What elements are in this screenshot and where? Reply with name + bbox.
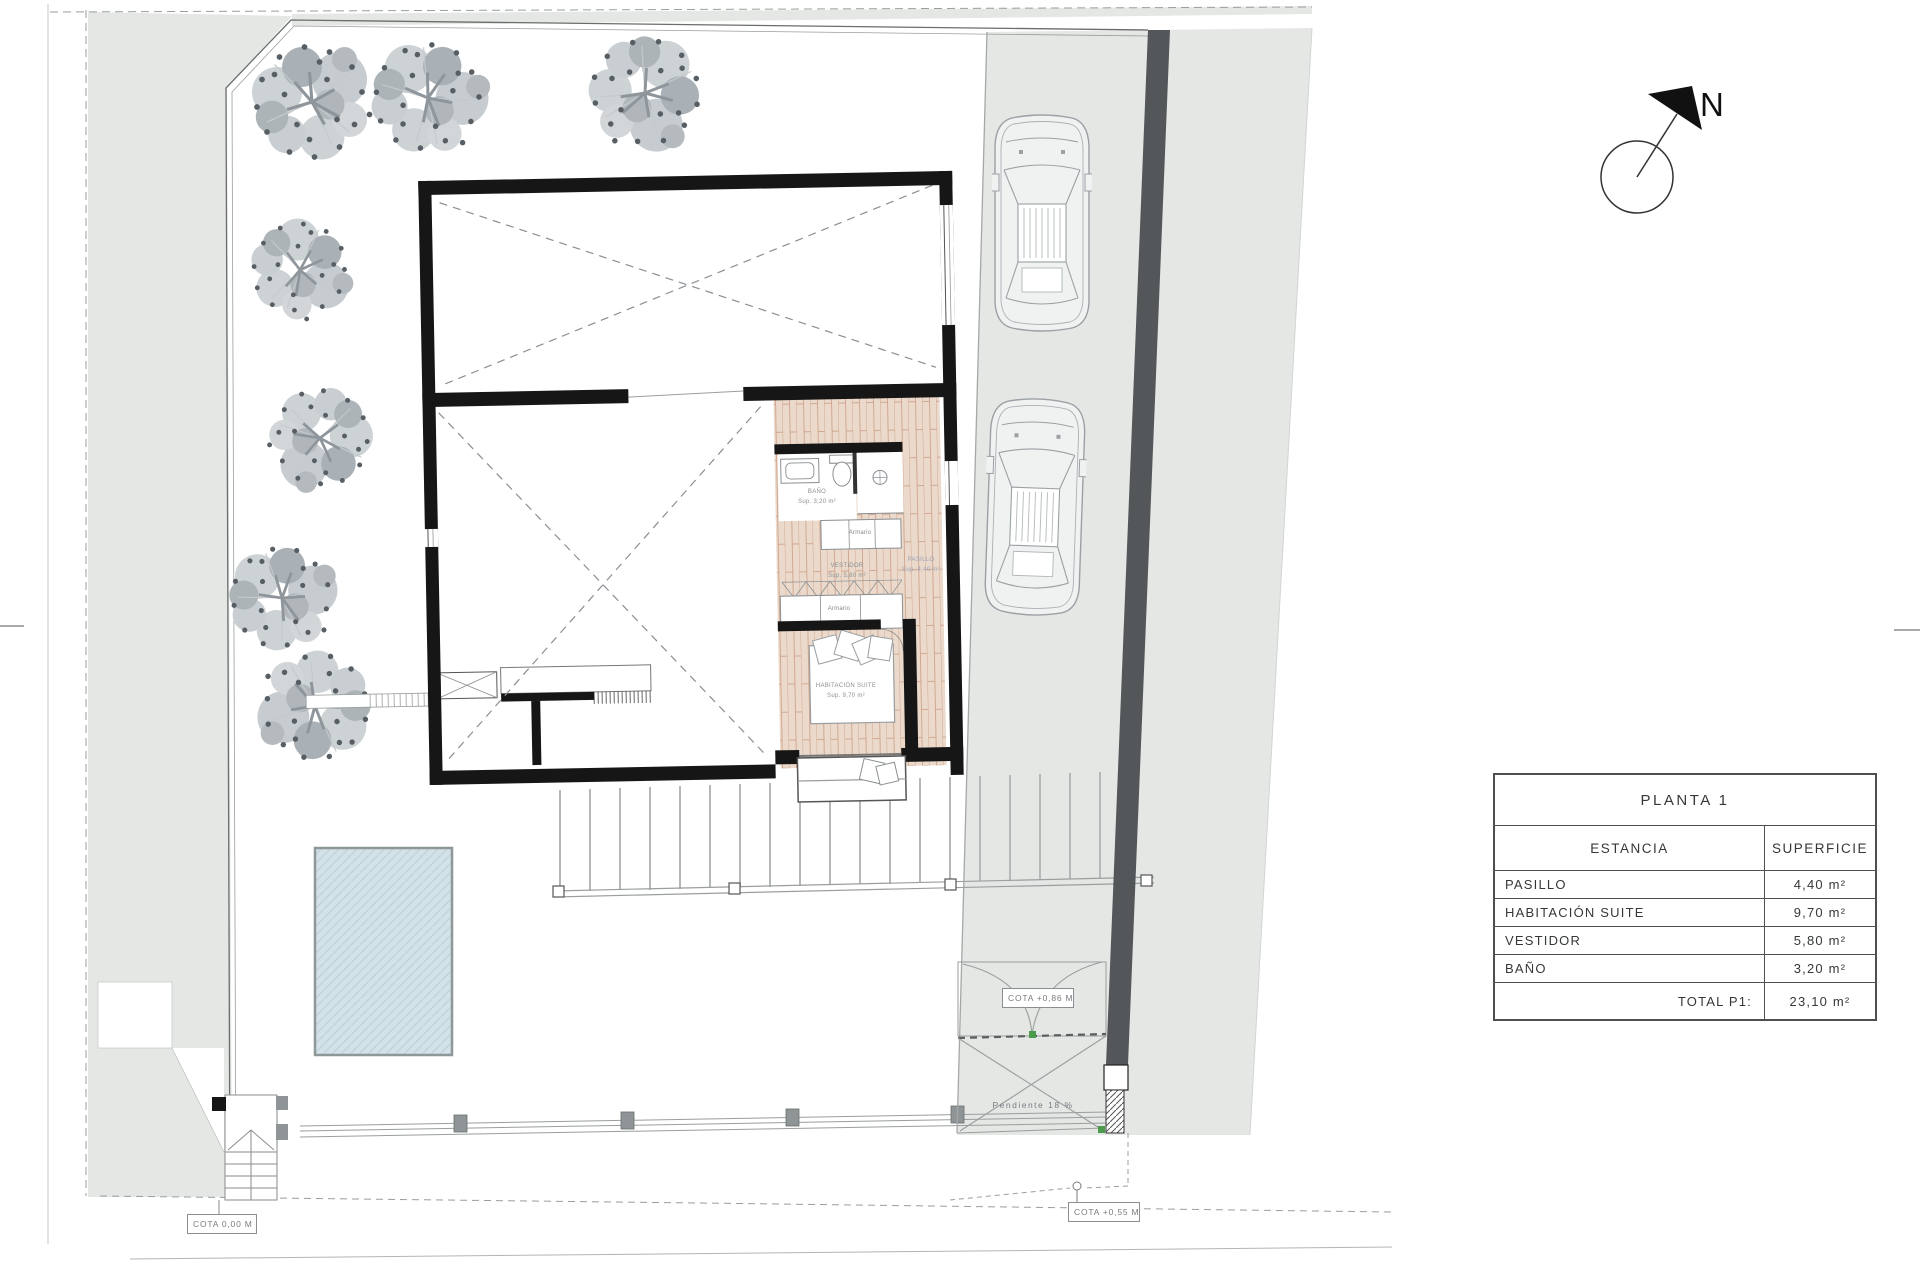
swimming-pool: [315, 848, 452, 1055]
car-icon: [979, 397, 1090, 616]
balcony: [797, 756, 906, 802]
surface-table-title: PLANTA 1: [1495, 775, 1875, 826]
car-icon: [990, 115, 1094, 331]
floor-plan-canvas: [0, 0, 1920, 1280]
gate-marker: [1029, 1031, 1036, 1038]
wardrobe-label-bottom: Armario: [800, 606, 878, 612]
table-row: VESTIDOR 5,80 m²: [1495, 927, 1875, 955]
room-label-hallway: PASILLO Sup. 4,40 m²: [896, 556, 946, 575]
room-label-vestidor: VESTIDOR Sup. 5,80 m²: [812, 562, 882, 581]
wardrobe-label-top: Armario: [824, 530, 896, 536]
table-row: HABITACIÓN SUITE 9,70 m²: [1495, 899, 1875, 927]
bedroom-suite: [809, 629, 905, 724]
room-label-bathroom: BAÑO Sup. 3,20 m²: [788, 488, 846, 507]
slope-label: Pendiente 18 %: [988, 1100, 1078, 1110]
north-label: N: [1700, 86, 1724, 124]
table-row: BAÑO 3,20 m²: [1495, 955, 1875, 983]
building: [296, 171, 964, 811]
north-arrow-icon: [1601, 86, 1702, 213]
total-area: 23,10 m²: [1764, 983, 1875, 1019]
room-name: VESTIDOR: [1495, 927, 1764, 954]
surface-table-header: ESTANCIA SUPERFICIE: [1495, 826, 1875, 871]
column-header-room: ESTANCIA: [1495, 826, 1764, 870]
room-name: PASILLO: [1495, 871, 1764, 898]
room-name: BAÑO: [1495, 955, 1764, 982]
cota-ground-label: COTA 0,00 M: [187, 1214, 257, 1234]
gate-marker: [1098, 1126, 1105, 1133]
room-area: 9,70 m²: [1764, 899, 1875, 926]
bathroom: [778, 451, 904, 521]
table-row: PASILLO 4,40 m²: [1495, 871, 1875, 899]
room-area: 4,40 m²: [1764, 871, 1875, 898]
room-label-suite: HABITACIÓN SUITE Sup. 9,70 m²: [808, 682, 884, 701]
floor-plan-sheet: N COTA 0,00 M COTA +0,55 M COTA +0,86 M …: [0, 0, 1920, 1280]
total-label: TOTAL P1:: [1495, 983, 1764, 1019]
cota-gate-label: COTA +0,86 M: [1002, 988, 1074, 1008]
west-walkway: [306, 693, 428, 708]
column-header-area: SUPERFICIE: [1764, 826, 1875, 870]
interior-stair: [437, 665, 653, 767]
surface-table: PLANTA 1 ESTANCIA SUPERFICIE PASILLO 4,4…: [1493, 773, 1877, 1021]
room-name: HABITACIÓN SUITE: [1495, 899, 1764, 926]
room-area: 3,20 m²: [1764, 955, 1875, 982]
table-total-row: TOTAL P1: 23,10 m²: [1495, 983, 1875, 1019]
street-level-leader: [950, 1133, 1128, 1204]
room-area: 5,80 m²: [1764, 927, 1875, 954]
cota-street-label: COTA +0,55 M: [1068, 1202, 1140, 1222]
